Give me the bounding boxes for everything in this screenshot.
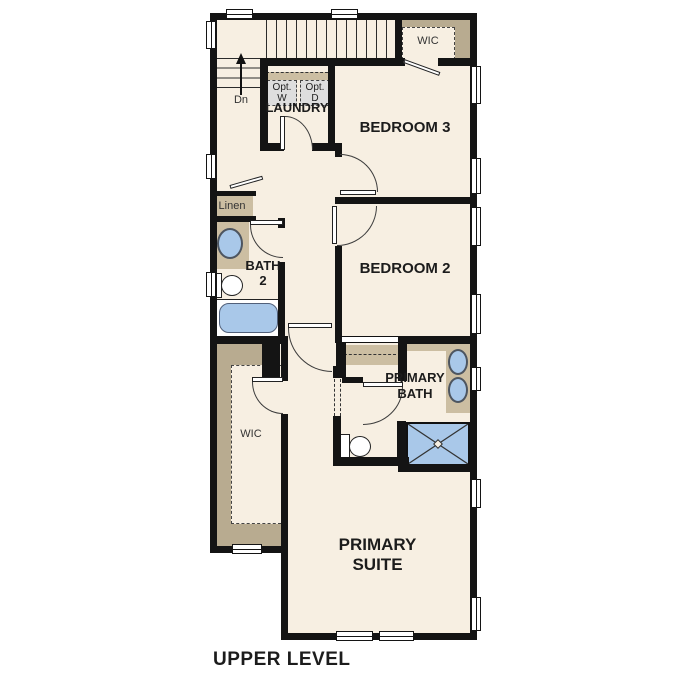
stairs-down-label: Dn bbox=[227, 94, 255, 106]
window-bottom-1 bbox=[336, 631, 373, 641]
bedroom3-label: BEDROOM 3 bbox=[345, 120, 465, 137]
bath2-tub-basin bbox=[219, 303, 278, 333]
wall-bedroom3-top-b bbox=[438, 58, 477, 66]
bath2-sink bbox=[217, 228, 243, 259]
primary-bath-label-line1: PRIMARY bbox=[380, 370, 450, 386]
dryer-label-line1: Opt. bbox=[306, 82, 325, 93]
wall-shower-bottom bbox=[398, 464, 477, 472]
wall-primary-left bbox=[281, 546, 288, 640]
wall-bedroom-divider bbox=[335, 197, 477, 204]
window-right-bedroom3-2 bbox=[471, 158, 481, 194]
wall-stair-right bbox=[395, 13, 402, 66]
window-bottom-2 bbox=[379, 631, 414, 641]
primary-shower bbox=[406, 422, 470, 466]
wall-toiletroom-top bbox=[342, 377, 363, 383]
laundry-label: LAUNDRY bbox=[260, 101, 334, 115]
bedroom3-door-leaf bbox=[340, 190, 376, 195]
window-left-1 bbox=[206, 21, 216, 49]
bath2-door-leaf bbox=[250, 220, 283, 225]
linen-label: Linen bbox=[212, 200, 252, 212]
primary-bath-label-line2: BATH bbox=[380, 386, 450, 402]
wall-wic-right-lower bbox=[281, 414, 288, 546]
bath2-label-line2: 2 bbox=[238, 273, 288, 288]
primary-suite-door-leaf bbox=[288, 323, 332, 328]
wic-bedroom3-label: WIC bbox=[403, 35, 453, 47]
bath2-tub bbox=[214, 299, 283, 337]
stair-direction-line bbox=[240, 63, 242, 95]
washer-label-line1: Opt. bbox=[273, 82, 292, 93]
window-right-bedroom2-1 bbox=[471, 207, 481, 246]
floor-plan: Opt. W Opt. D bbox=[0, 0, 687, 687]
window-right-bedroom3-1 bbox=[471, 66, 481, 104]
window-top-1 bbox=[226, 9, 253, 19]
laundry-counter bbox=[266, 72, 328, 80]
primary-suite-label-line1: PRIMARY bbox=[315, 535, 440, 555]
wic-primary-shelf-bottom bbox=[212, 524, 285, 546]
primary-bath-label: PRIMARY BATH bbox=[380, 370, 450, 402]
window-right-primary-suite-1 bbox=[471, 479, 481, 508]
bath2-label: BATH 2 bbox=[238, 258, 288, 288]
window-right-bedroom2-2 bbox=[471, 294, 481, 334]
wic-primary-shelf-top bbox=[231, 344, 262, 365]
plan-title: UPPER LEVEL bbox=[213, 650, 413, 671]
bedroom2-closet-opening bbox=[335, 336, 398, 343]
window-left-3 bbox=[206, 272, 216, 297]
shower-glass-lines bbox=[408, 424, 468, 464]
wic-primary-label: WIC bbox=[226, 428, 276, 440]
wall-hall-mid bbox=[335, 246, 342, 343]
primary-bath-sink-2 bbox=[448, 377, 468, 403]
bath2-label-line1: BATH bbox=[238, 258, 288, 273]
primary-bath-sink-1 bbox=[448, 349, 468, 375]
primary-toilet-bowl bbox=[349, 436, 371, 457]
window-left-2 bbox=[206, 154, 216, 179]
bedroom2-closet-shelf bbox=[337, 345, 398, 365]
window-wic-bottom bbox=[232, 544, 262, 554]
primary-bath-counter-top bbox=[404, 343, 448, 351]
stair-arrow-icon bbox=[236, 53, 246, 64]
wall-pocket-b bbox=[333, 416, 341, 459]
window-right-primary-bath bbox=[471, 367, 481, 391]
window-top-2 bbox=[331, 9, 358, 19]
laundry-door-leaf bbox=[280, 116, 285, 150]
stairs-upper-run bbox=[266, 20, 395, 58]
wall-wic-right-upper bbox=[281, 343, 288, 381]
wall-pocket-a bbox=[333, 366, 341, 378]
wall-toilet-shower-divider bbox=[397, 421, 406, 459]
wall-hall-stub bbox=[262, 336, 280, 381]
wall-bedroom2-bottom bbox=[398, 336, 477, 344]
bedroom2-door-leaf bbox=[332, 206, 337, 244]
window-right-primary-suite-2 bbox=[471, 597, 481, 631]
primary-suite-label-line2: SUITE bbox=[315, 555, 440, 575]
primary-suite-label: PRIMARY SUITE bbox=[315, 535, 440, 575]
wic-primary-door-leaf bbox=[252, 377, 283, 382]
bedroom2-label: BEDROOM 2 bbox=[345, 261, 465, 278]
wall-linen-top bbox=[210, 191, 256, 196]
primary-bath-pocket-door bbox=[334, 379, 341, 416]
